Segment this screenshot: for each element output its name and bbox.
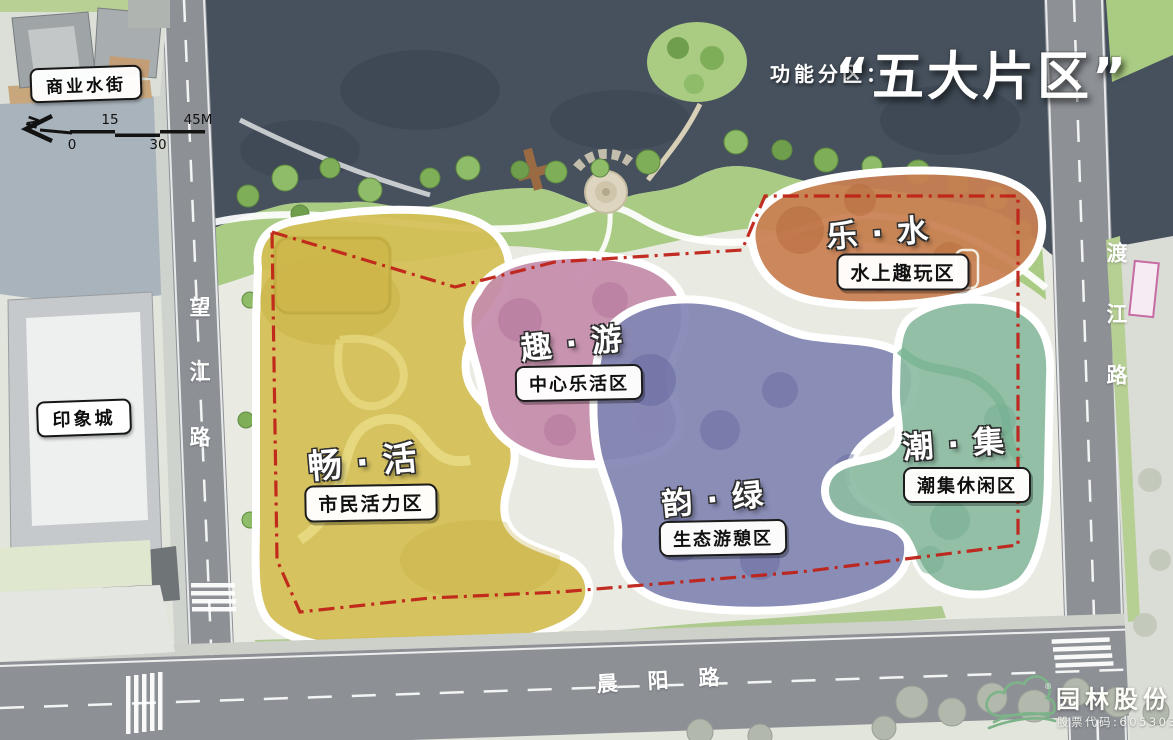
road-label-dujiang: 渡江路 [1101,242,1131,425]
scale-30: 30 [149,137,166,153]
zone-orange-name: 乐·水 [825,204,944,257]
site-plan-screenshot: N 商业水街 印象城 15 45M 0 30 功能分区： “五大片区” 望江路 … [0,0,1173,740]
label-mall: 印象城 [36,398,132,437]
label-commercial-water-street: 商业水街 [29,65,142,104]
zone-pink-label: 中心乐活区 [515,364,644,402]
zone-teal-label: 潮集休闲区 [903,467,1031,503]
logo-company-name: 园林股份 [1056,680,1172,715]
road-label-wangjiang: 望江路 [184,296,214,491]
zone-purple-label: 生态游憩区 [659,519,788,557]
mall-building [0,292,180,662]
logo-registered-mark: ® [1044,682,1052,691]
scale-0: 0 [68,137,77,153]
zone-yellow-label: 市民活力区 [304,483,438,522]
scale-15: 15 [101,112,118,128]
title-main: “五大片区” [835,35,1129,110]
zone-teal-name: 潮·集 [901,415,1020,468]
scale-45m: 45M [184,112,213,128]
logo-stock-code: 股票代码:605303 [1057,714,1173,730]
east-structure [1129,261,1159,317]
zone-orange-label: 水上趣玩区 [836,254,969,291]
